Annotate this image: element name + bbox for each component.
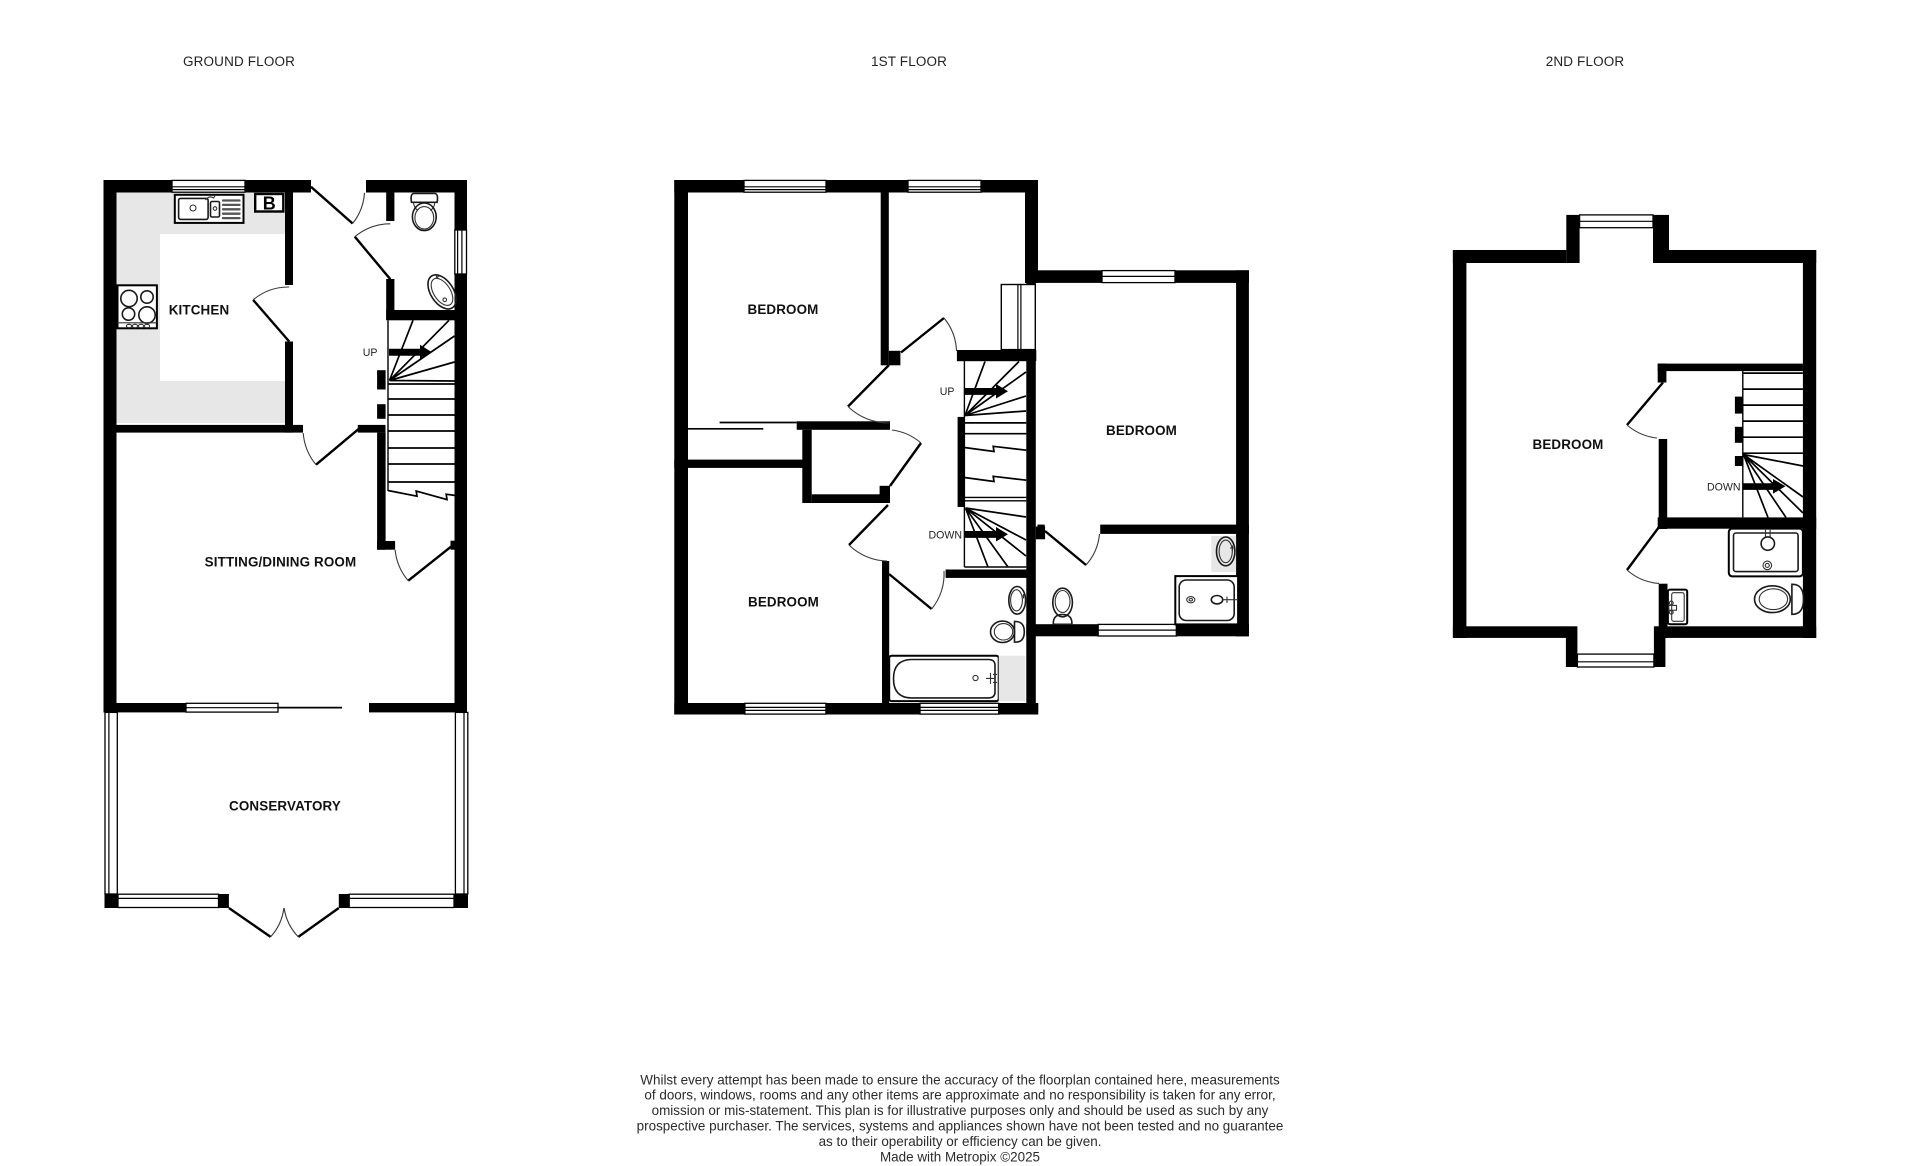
- svg-text:as to their operability or eff: as to their operability or efficiency ca…: [819, 1134, 1102, 1149]
- svg-text:B: B: [263, 194, 276, 214]
- svg-text:BEDROOM: BEDROOM: [1533, 437, 1604, 452]
- svg-text:omission or mis-statement. Thi: omission or mis-statement. This plan is …: [652, 1103, 1269, 1118]
- svg-text:Whilst every attempt has been: Whilst every attempt has been made to en…: [640, 1072, 1280, 1087]
- svg-text:1ST FLOOR: 1ST FLOOR: [871, 54, 947, 69]
- svg-text:BEDROOM: BEDROOM: [748, 302, 819, 317]
- svg-text:CONSERVATORY: CONSERVATORY: [229, 799, 341, 814]
- svg-text:DOWN: DOWN: [928, 529, 962, 541]
- svg-text:GROUND FLOOR: GROUND FLOOR: [183, 54, 295, 69]
- svg-text:KITCHEN: KITCHEN: [169, 303, 230, 318]
- svg-text:UP: UP: [363, 347, 378, 359]
- svg-text:DOWN: DOWN: [1707, 482, 1741, 494]
- svg-text:BEDROOM: BEDROOM: [1106, 423, 1177, 438]
- svg-text:Made with Metropix ©2025: Made with Metropix ©2025: [880, 1149, 1040, 1164]
- svg-text:2ND FLOOR: 2ND FLOOR: [1546, 54, 1625, 69]
- svg-text:of doors, windows, rooms and a: of doors, windows, rooms and any other i…: [644, 1088, 1275, 1103]
- svg-text:prospective purchaser. The ser: prospective purchaser. The services, sys…: [637, 1119, 1284, 1134]
- svg-text:BEDROOM: BEDROOM: [748, 595, 819, 610]
- svg-text:UP: UP: [940, 386, 955, 398]
- svg-text:SITTING/DINING ROOM: SITTING/DINING ROOM: [205, 555, 357, 570]
